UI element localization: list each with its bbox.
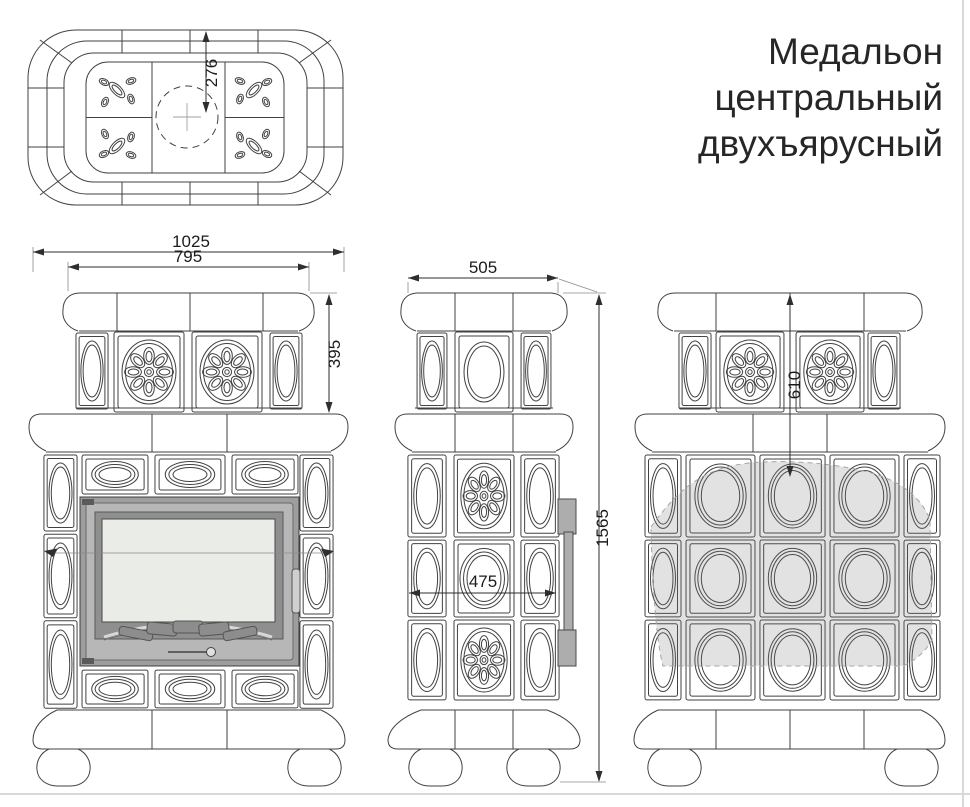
door-hinge-top (82, 499, 94, 505)
dim-395: 395 (310, 293, 344, 413)
dim-610: 610 (785, 294, 804, 477)
dim-505-label: 505 (469, 258, 497, 277)
back-view: 610 (634, 293, 945, 786)
front-crown (63, 293, 314, 331)
side-view: 505 1565 (388, 258, 612, 786)
top-view-ring-joints (28, 30, 343, 205)
damper-knob[interactable] (207, 648, 216, 657)
side-foot-left (409, 749, 462, 786)
front-upper-tier (76, 332, 302, 412)
dim-276: 276 (202, 31, 221, 113)
front-oval-row-top (82, 455, 298, 494)
door-glass (102, 519, 275, 622)
back-foot-right (885, 749, 938, 786)
front-foot-right (288, 749, 341, 786)
side-foot-right (507, 749, 560, 786)
side-plinth (388, 710, 580, 786)
title-line-3: двухъярусный (698, 123, 943, 164)
title-line-2: центральный (715, 77, 943, 118)
side-crown (401, 293, 567, 331)
dim-276-label: 276 (202, 59, 221, 87)
heat-zone-shading (651, 462, 932, 666)
front-foot-left (37, 749, 90, 786)
stove-technical-drawing: Медальон центральный двухъярусный (0, 0, 970, 807)
dim-475-label: 475 (469, 572, 497, 591)
front-plinth (33, 710, 345, 786)
front-oval-row-bottom (82, 670, 298, 708)
dim-1565-label: 1565 (593, 509, 612, 547)
door-side-profile (558, 499, 576, 666)
title-line-1: Медальон (768, 31, 943, 72)
firebox-door (80, 497, 300, 666)
dim-795-label: 795 (174, 247, 202, 266)
dim-395-label: 395 (325, 340, 344, 368)
back-plinth (634, 710, 945, 786)
dim-610-label: 610 (785, 371, 804, 399)
dim-505: 505 (408, 258, 597, 293)
door-hinge-bottom (82, 658, 94, 664)
door-handle[interactable] (292, 569, 300, 613)
drawing-title: Медальон центральный двухъярусный (698, 31, 943, 164)
side-middle-cornice (395, 414, 573, 452)
back-foot-left (648, 749, 701, 786)
top-view: 276 (28, 30, 343, 205)
front-view: 1025 795 395 (29, 232, 348, 786)
front-middle-cornice (29, 414, 348, 452)
side-upper-tier (415, 332, 553, 412)
drawing-page: Медальон центральный двухъярусный (0, 0, 970, 807)
dim-795: 795 (68, 247, 309, 291)
